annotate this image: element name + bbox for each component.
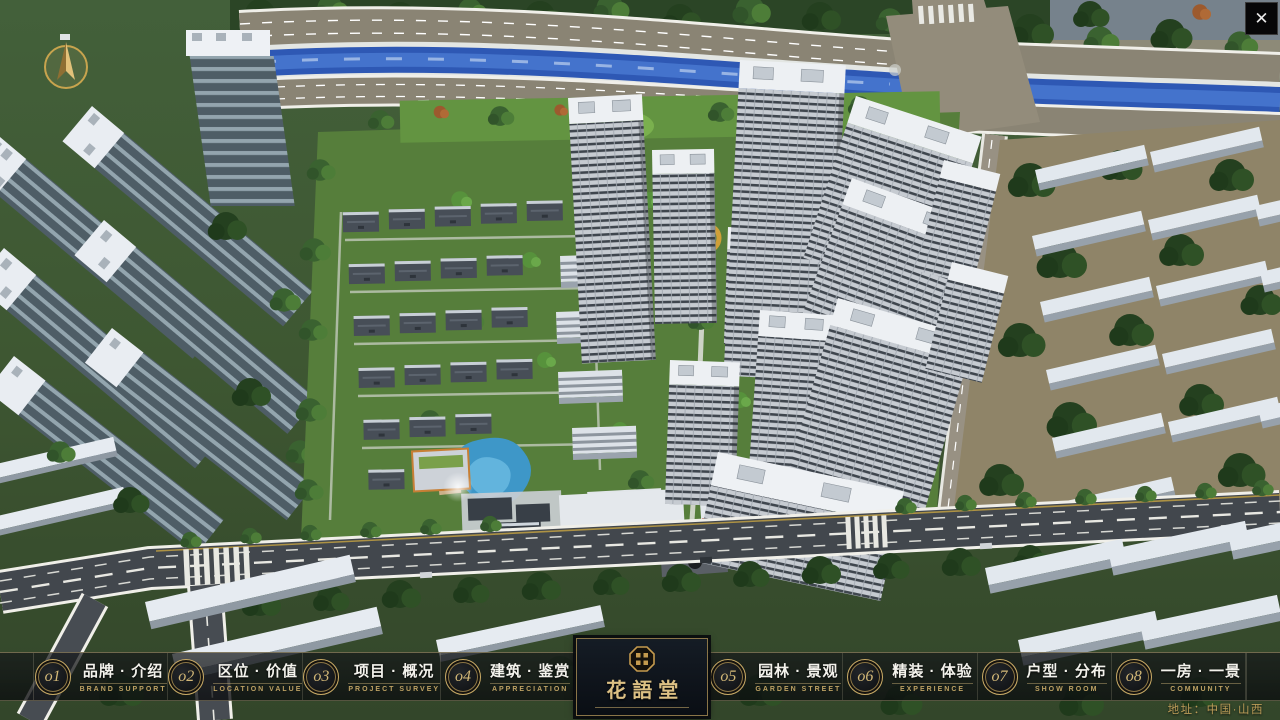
item-number-badge: o8 bbox=[1116, 659, 1152, 695]
item-subtitle-en: APPRECIATION bbox=[490, 683, 570, 693]
bar-spacer-left bbox=[0, 653, 34, 700]
item-number-badge: o5 bbox=[710, 659, 746, 695]
project-address: 地址：中国·山西 bbox=[1168, 701, 1264, 717]
project-logo[interactable]: 花語堂 bbox=[576, 638, 708, 716]
aerial-masterplan-render bbox=[0, 0, 1280, 720]
logo-tagline-rule bbox=[595, 707, 689, 708]
item-number-badge: o2 bbox=[168, 659, 204, 695]
menu-item-02-location[interactable]: o2 区位 · 价值 LOCATION VALUE bbox=[168, 653, 303, 700]
logo-slot: 花語堂 bbox=[575, 653, 709, 700]
item-subtitle-en: PROJECT SURVEY bbox=[348, 683, 440, 693]
item-title-cn: 精装 · 体验 bbox=[892, 660, 972, 681]
close-button[interactable]: ✕ bbox=[1245, 2, 1278, 35]
item-title-cn: 园林 · 景观 bbox=[758, 660, 838, 681]
item-labels: 区位 · 价值 LOCATION VALUE bbox=[213, 660, 302, 693]
item-labels: 品牌 · 介绍 BRAND SUPPORT bbox=[80, 660, 167, 693]
item-title-cn: 一房 · 一景 bbox=[1161, 660, 1241, 681]
item-labels: 建筑 · 鉴赏 APPRECIATION bbox=[490, 660, 570, 693]
item-subtitle-en: COMMUNITY bbox=[1161, 683, 1241, 693]
screen: ✕ o1 品牌 · 介绍 BRAND SUPPORT o2 区位 · 价值 LO… bbox=[0, 0, 1280, 720]
lens-flare bbox=[443, 472, 473, 502]
item-labels: 项目 · 概况 PROJECT SURVEY bbox=[348, 660, 440, 693]
menu-item-06-interior[interactable]: o6 精装 · 体验 EXPERIENCE bbox=[843, 653, 977, 700]
item-labels: 园林 · 景观 GARDEN STREET bbox=[755, 660, 841, 693]
item-number-badge: o7 bbox=[982, 659, 1018, 695]
item-subtitle-en: GARDEN STREET bbox=[755, 683, 841, 693]
item-labels: 户型 · 分布 SHOW ROOM bbox=[1027, 660, 1107, 693]
item-labels: 一房 · 一景 COMMUNITY bbox=[1161, 660, 1241, 693]
menu-item-07-floorplans[interactable]: o7 户型 · 分布 SHOW ROOM bbox=[978, 653, 1112, 700]
item-subtitle-en: LOCATION VALUE bbox=[213, 683, 302, 693]
menu-item-08-views[interactable]: o8 一房 · 一景 COMMUNITY bbox=[1112, 653, 1246, 700]
item-subtitle-en: SHOW ROOM bbox=[1027, 683, 1107, 693]
menu-item-05-garden[interactable]: o5 园林 · 景观 GARDEN STREET bbox=[709, 653, 843, 700]
seal-icon bbox=[629, 646, 655, 672]
item-number-badge: o3 bbox=[303, 659, 339, 695]
item-subtitle-en: EXPERIENCE bbox=[892, 683, 972, 693]
menu-item-04-architecture[interactable]: o4 建筑 · 鉴赏 APPRECIATION bbox=[441, 653, 575, 700]
item-number-badge: o1 bbox=[35, 659, 71, 695]
bar-spacer-right bbox=[1246, 653, 1280, 700]
item-subtitle-en: BRAND SUPPORT bbox=[80, 683, 167, 693]
item-title-cn: 建筑 · 鉴赏 bbox=[490, 660, 570, 681]
item-title-cn: 户型 · 分布 bbox=[1027, 660, 1107, 681]
item-title-cn: 区位 · 价值 bbox=[218, 660, 298, 681]
item-number-badge: o6 bbox=[847, 659, 883, 695]
district-east bbox=[950, 120, 1280, 540]
item-title-cn: 品牌 · 介绍 bbox=[83, 660, 163, 681]
item-title-cn: 项目 · 概况 bbox=[354, 660, 434, 681]
menu-item-01-brand[interactable]: o1 品牌 · 介绍 BRAND SUPPORT bbox=[34, 653, 168, 700]
menu-item-03-project[interactable]: o3 项目 · 概况 PROJECT SURVEY bbox=[303, 653, 441, 700]
bottom-menu-bar: o1 品牌 · 介绍 BRAND SUPPORT o2 区位 · 价值 LOCA… bbox=[0, 652, 1280, 701]
item-number-badge: o4 bbox=[445, 659, 481, 695]
item-labels: 精装 · 体验 EXPERIENCE bbox=[892, 660, 972, 693]
logo-text: 花語堂 bbox=[600, 674, 684, 703]
